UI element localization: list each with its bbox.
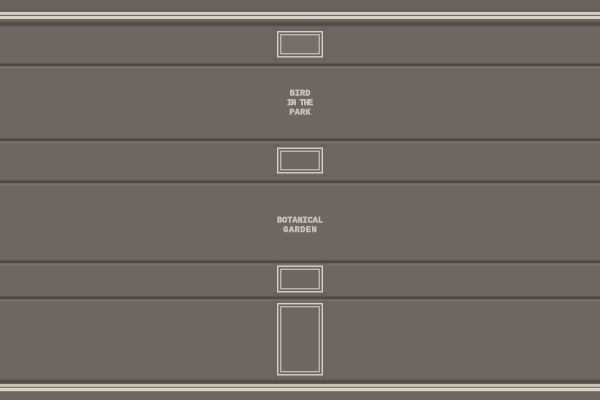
svg-text:PARK: PARK [289, 108, 311, 118]
svg-text:BIRD: BIRD [290, 88, 311, 98]
svg-text:IN THE: IN THE [287, 98, 313, 108]
svg-text:BOTANICAL: BOTANICAL [277, 215, 323, 225]
svg-text:GARDEN: GARDEN [283, 225, 316, 235]
